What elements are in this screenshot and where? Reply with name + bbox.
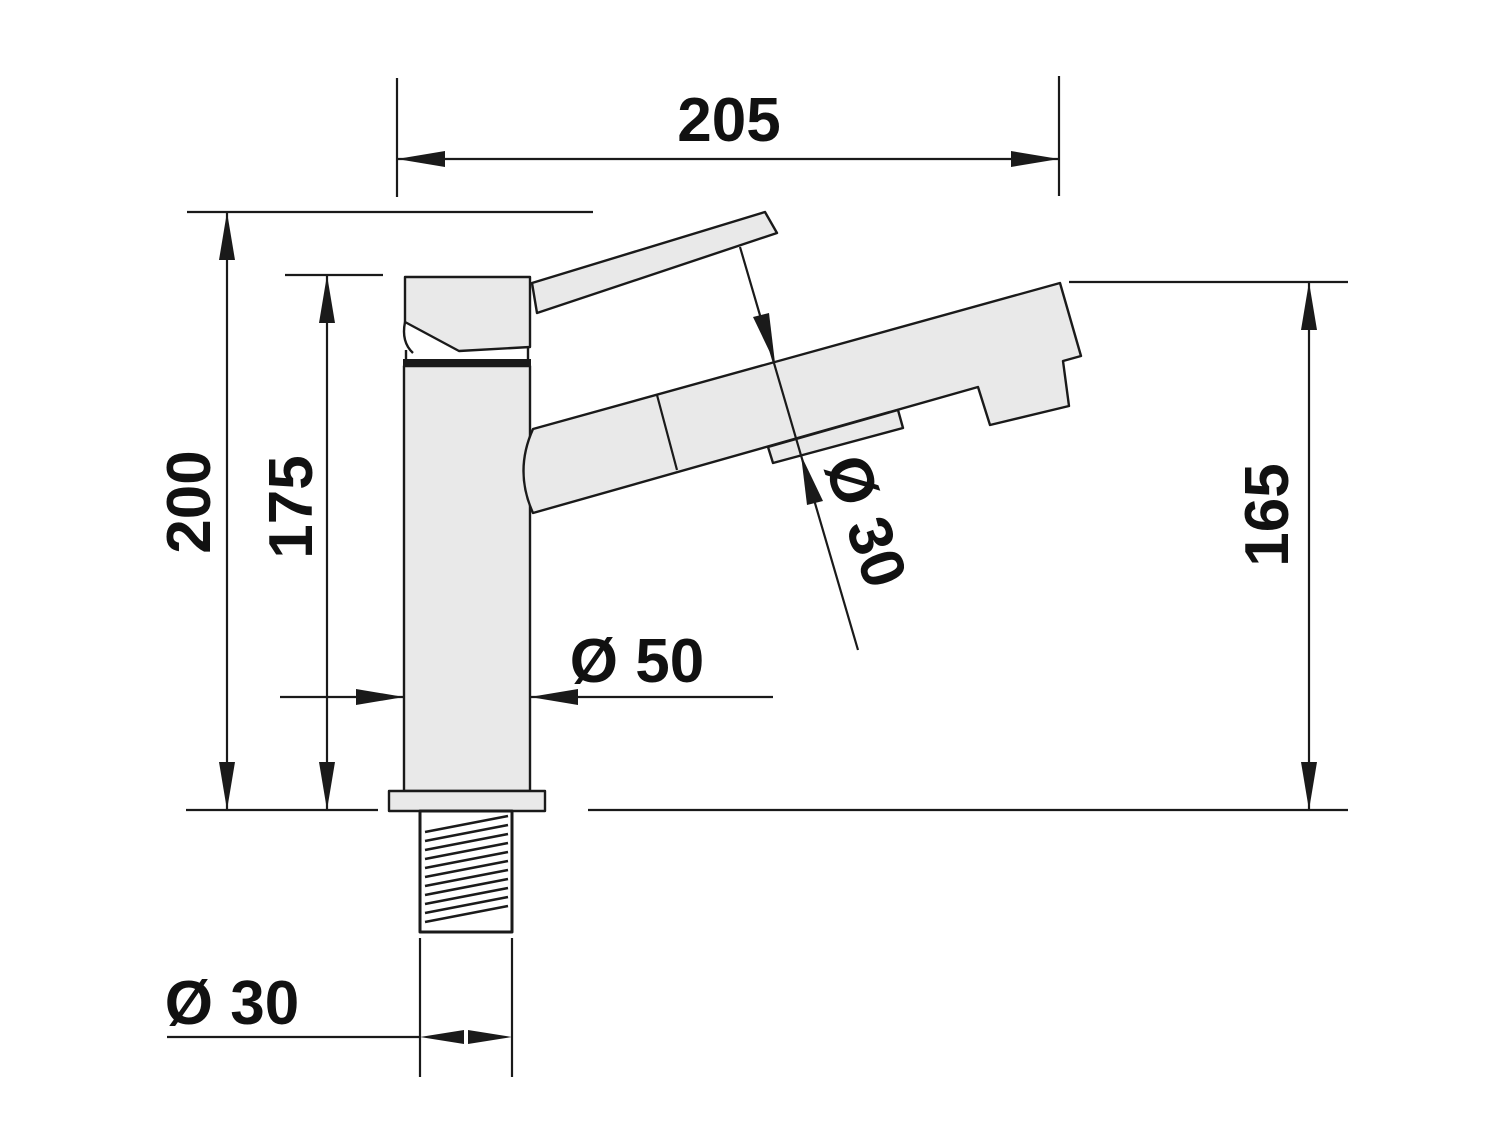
dim-label-175: 175 <box>257 455 326 558</box>
mounting-flange <box>389 791 545 811</box>
dim-label-dia50: Ø 50 <box>570 627 704 696</box>
drawing-canvas: 205 200 175 165 Ø 50 Ø 30 Ø 30 <box>0 0 1500 1141</box>
faucet-body <box>404 366 530 791</box>
dim-label-165: 165 <box>1233 463 1302 566</box>
dim-label-dia30-thread: Ø 30 <box>165 969 299 1038</box>
dim-label-205: 205 <box>677 86 780 155</box>
dim-label-200: 200 <box>155 450 224 553</box>
